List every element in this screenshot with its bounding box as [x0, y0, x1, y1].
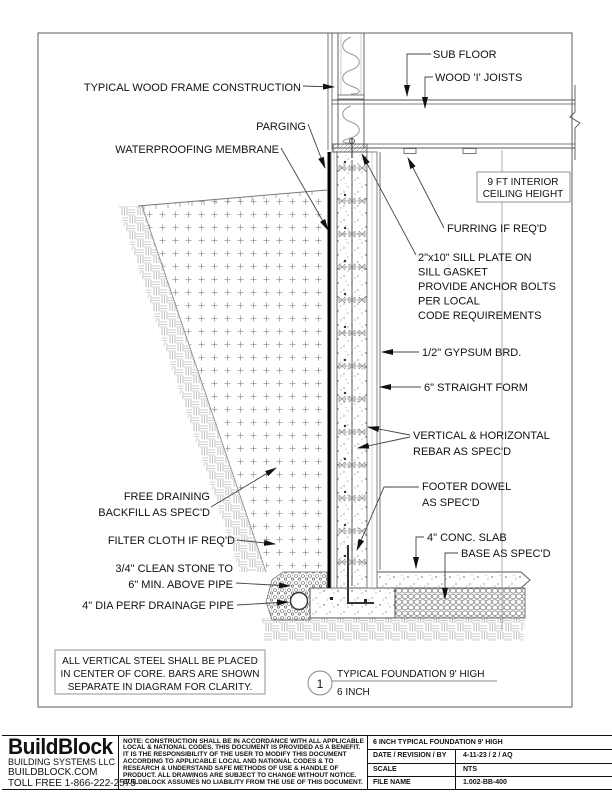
ceiling-height-line2: CEILING HEIGHT	[483, 189, 564, 200]
waterproofing-membrane-line	[328, 152, 331, 588]
detail-callout: 1 TYPICAL FOUNDATION 9' HIGH 6 INCH	[308, 669, 497, 698]
concrete-slab	[377, 572, 530, 588]
drawing-title: 6 INCH TYPICAL FOUNDATION 9' HIGH	[368, 736, 612, 750]
label-furring: FURRING IF REQ'D	[447, 223, 547, 235]
label-gypsum: 1/2" GYPSUM BRD.	[422, 347, 521, 359]
label-clean-stone-2: 6" MIN. ABOVE PIPE	[128, 579, 233, 591]
label-sill-2: SILL GASKET	[418, 267, 488, 279]
furring-strip	[463, 149, 476, 154]
info-value: 1.002-BB-400	[456, 777, 612, 790]
batt-insulation	[343, 37, 360, 94]
label-conc-slab: 4" CONC. SLAB	[427, 532, 507, 544]
label-drainage-pipe: 4" DIA PERF DRAINAGE PIPE	[82, 600, 234, 612]
title-block: BuildBlock BUILDING SYSTEMS LLC BUILDBLO…	[2, 735, 612, 790]
label-waterproofing: WATERPROOFING MEMBRANE	[115, 144, 279, 156]
callout-title: TYPICAL FOUNDATION 9' HIGH	[337, 669, 484, 680]
icf-wall	[328, 152, 381, 588]
disclaimer-note: NOTE: CONSTRUCTION SHALL BE IN ACCORDANC…	[118, 736, 368, 789]
slab-base	[395, 588, 525, 618]
info-row-filename: FILE NAME 1.002-BB-400	[368, 777, 612, 790]
callout-number: 1	[317, 677, 324, 691]
ceiling-height-line1: 9 FT INTERIOR	[488, 177, 559, 188]
label-free-draining-2: BACKFILL AS SPEC'D	[98, 507, 210, 519]
label-sub-floor: SUB FLOOR	[433, 49, 497, 61]
info-label: DATE / REVISION / BY	[368, 750, 456, 763]
info-label: SCALE	[368, 764, 456, 777]
label-footer-dowel-2: AS SPEC'D	[422, 497, 480, 509]
label-sill-1: 2"x10" SILL PLATE ON	[418, 252, 532, 264]
earth-bottom-hatch	[262, 618, 525, 641]
note-line2: IN CENTER OF CORE. BARS ARE SHOWN	[61, 669, 260, 680]
company-website: BUILDBLOCK.COM	[8, 767, 118, 778]
label-sill-5: CODE REQUIREMENTS	[418, 310, 541, 322]
info-row-scale: SCALE NTS	[368, 764, 612, 778]
label-straight-form: 6" STRAIGHT FORM	[424, 382, 528, 394]
label-rebar-1: VERTICAL & HORIZONTAL	[413, 430, 550, 442]
label-free-draining-1: FREE DRAINING	[124, 491, 210, 503]
label-wood-i-joists: WOOD 'I' JOISTS	[435, 72, 522, 84]
callout-subtitle: 6 INCH	[337, 687, 370, 698]
drainage-pipe	[291, 593, 308, 610]
info-value: 4-11-23 / 2 / AQ	[456, 750, 612, 763]
label-rebar-2: REBAR AS SPEC'D	[413, 446, 511, 458]
label-parging: PARGING	[256, 121, 306, 133]
label-filter-cloth: FILTER CLOTH IF REQ'D	[108, 535, 235, 547]
label-sill-4: PER LOCAL	[418, 296, 480, 308]
disclaimer-line: BUILDBLOCK ASSUMES NO LIABILITY FROM THE…	[123, 780, 364, 787]
company-logo: BuildBlock	[8, 737, 118, 758]
label-base: BASE AS SPEC'D	[461, 548, 551, 560]
drawing-info-table: 6 INCH TYPICAL FOUNDATION 9' HIGH DATE /…	[368, 736, 612, 789]
drawing-sheet: TYPICAL WOOD FRAME CONSTRUCTION PARGING …	[0, 0, 612, 792]
note-line3: SEPARATE IN DIAGRAM FOR CLARITY.	[68, 682, 252, 693]
info-row-date: DATE / REVISION / BY 4-11-23 / 2 / AQ	[368, 750, 612, 764]
note-line1: ALL VERTICAL STEEL SHALL BE PLACED	[62, 656, 258, 667]
label-typical-wood-frame: TYPICAL WOOD FRAME CONSTRUCTION	[84, 82, 301, 94]
info-label: FILE NAME	[368, 777, 456, 790]
label-clean-stone-1: 3/4" CLEAN STONE TO	[115, 563, 233, 575]
label-sill-3: PROVIDE ANCHOR BOLTS	[418, 281, 556, 293]
vertical-steel-note: ALL VERTICAL STEEL SHALL BE PLACED IN CE…	[55, 650, 265, 694]
ceiling-height-note: 9 FT INTERIOR CEILING HEIGHT	[477, 172, 570, 202]
company-phone: TOLL FREE 1-866-222-2575	[8, 778, 118, 789]
detail-drawing: TYPICAL WOOD FRAME CONSTRUCTION PARGING …	[0, 0, 612, 735]
furring-strip	[404, 149, 416, 154]
info-value: NTS	[456, 764, 612, 777]
label-footer-dowel-1: FOOTER DOWEL	[422, 481, 511, 493]
company-block: BuildBlock BUILDING SYSTEMS LLC BUILDBLO…	[2, 736, 118, 789]
